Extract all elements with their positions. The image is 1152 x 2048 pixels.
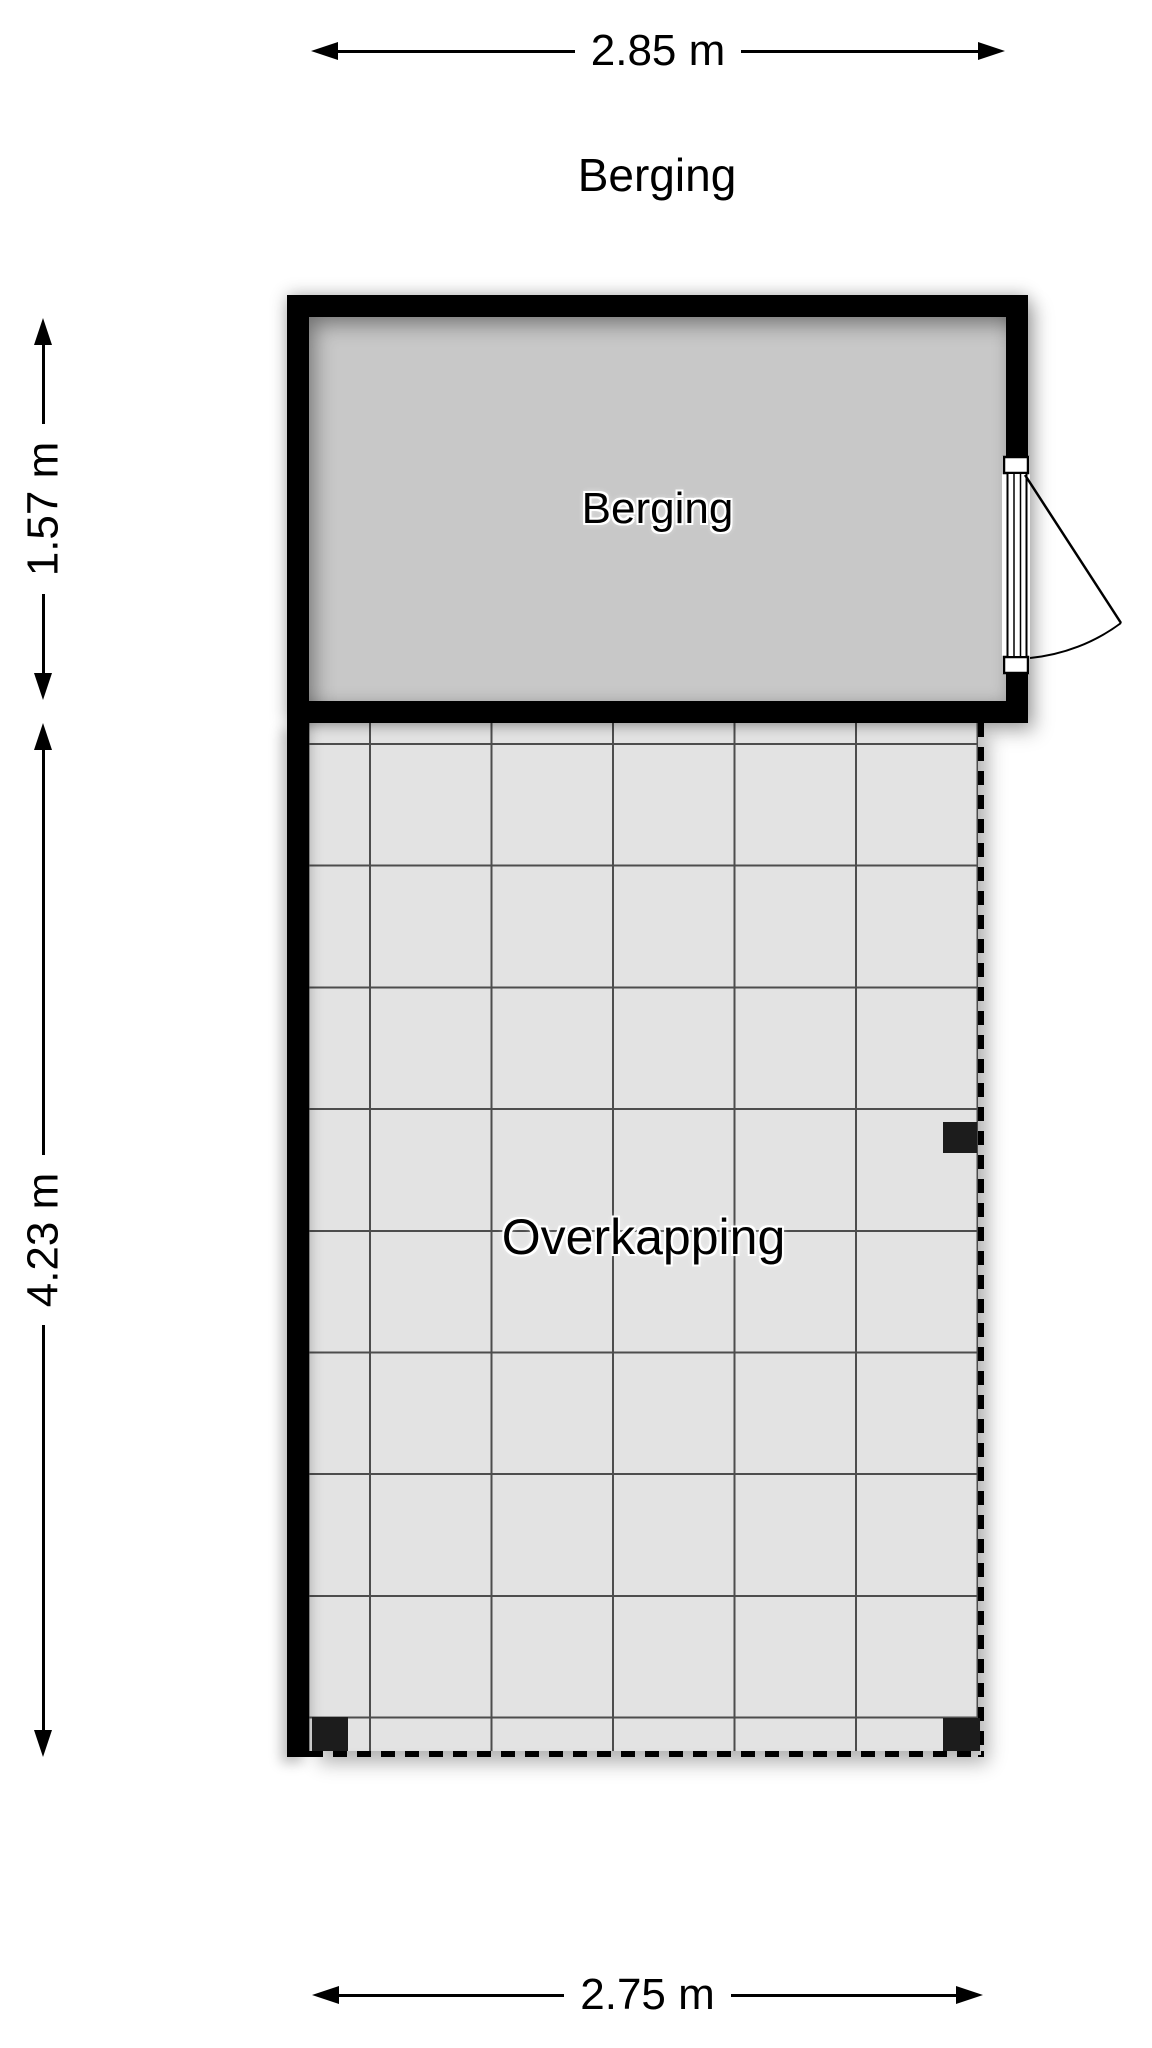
dimension-line bbox=[42, 750, 45, 1155]
dimension-label-wrap: 4.23 m bbox=[21, 1155, 65, 1325]
arrowhead-up-icon bbox=[34, 723, 52, 750]
plan-title: Berging bbox=[578, 152, 737, 198]
arrowhead-down-icon bbox=[34, 673, 52, 700]
berging-room-label: Berging bbox=[582, 487, 734, 531]
berging-floor: Berging bbox=[309, 317, 1006, 701]
dimension-label-overkapping-depth: 4.23 m bbox=[21, 1173, 65, 1308]
overkapping-open-edge-right bbox=[978, 723, 984, 1757]
dimension-label-wrap: 1.57 m bbox=[21, 424, 65, 594]
door-leaf bbox=[1025, 475, 1121, 623]
dimension-label-berging-depth: 1.57 m bbox=[21, 442, 65, 577]
overkapping-open-edge-bottom bbox=[309, 1751, 984, 1757]
floor-plan: 2.85 m Berging Berging Overkapping 1.57 … bbox=[0, 0, 1152, 2048]
overkapping-label: Overkapping bbox=[502, 1212, 786, 1262]
arrowhead-right-icon bbox=[956, 1986, 983, 2004]
dimension-line bbox=[42, 1325, 45, 1730]
post-bottom-left bbox=[312, 1717, 348, 1751]
dimension-line bbox=[42, 594, 45, 673]
dimension-line bbox=[338, 50, 575, 53]
door-swing-arc bbox=[1030, 623, 1121, 658]
dimension-label-berging-width: 2.85 m bbox=[575, 29, 742, 73]
dimension-berging-width: 2.85 m bbox=[311, 27, 1005, 75]
dimension-label-overkapping-width: 2.75 m bbox=[564, 1973, 731, 2017]
dimension-overkapping-depth: 4.23 m bbox=[21, 723, 65, 1757]
dimension-line bbox=[731, 1994, 956, 1997]
berging-room: Berging bbox=[287, 295, 1028, 723]
dimension-berging-depth: 1.57 m bbox=[21, 318, 65, 700]
post-bottom-right bbox=[943, 1718, 980, 1751]
arrowhead-right-icon bbox=[978, 42, 1005, 60]
dimension-line bbox=[339, 1994, 564, 1997]
arrowhead-up-icon bbox=[34, 318, 52, 345]
arrowhead-down-icon bbox=[34, 1730, 52, 1757]
dimension-line bbox=[42, 345, 45, 424]
dimension-overkapping-width: 2.75 m bbox=[312, 1971, 983, 2019]
dimension-line bbox=[741, 50, 978, 53]
arrowhead-left-icon bbox=[311, 42, 338, 60]
post-right bbox=[943, 1122, 977, 1153]
overkapping-floor: Overkapping bbox=[309, 723, 978, 1751]
arrowhead-left-icon bbox=[312, 1986, 339, 2004]
overkapping-left-wall bbox=[287, 723, 309, 1757]
